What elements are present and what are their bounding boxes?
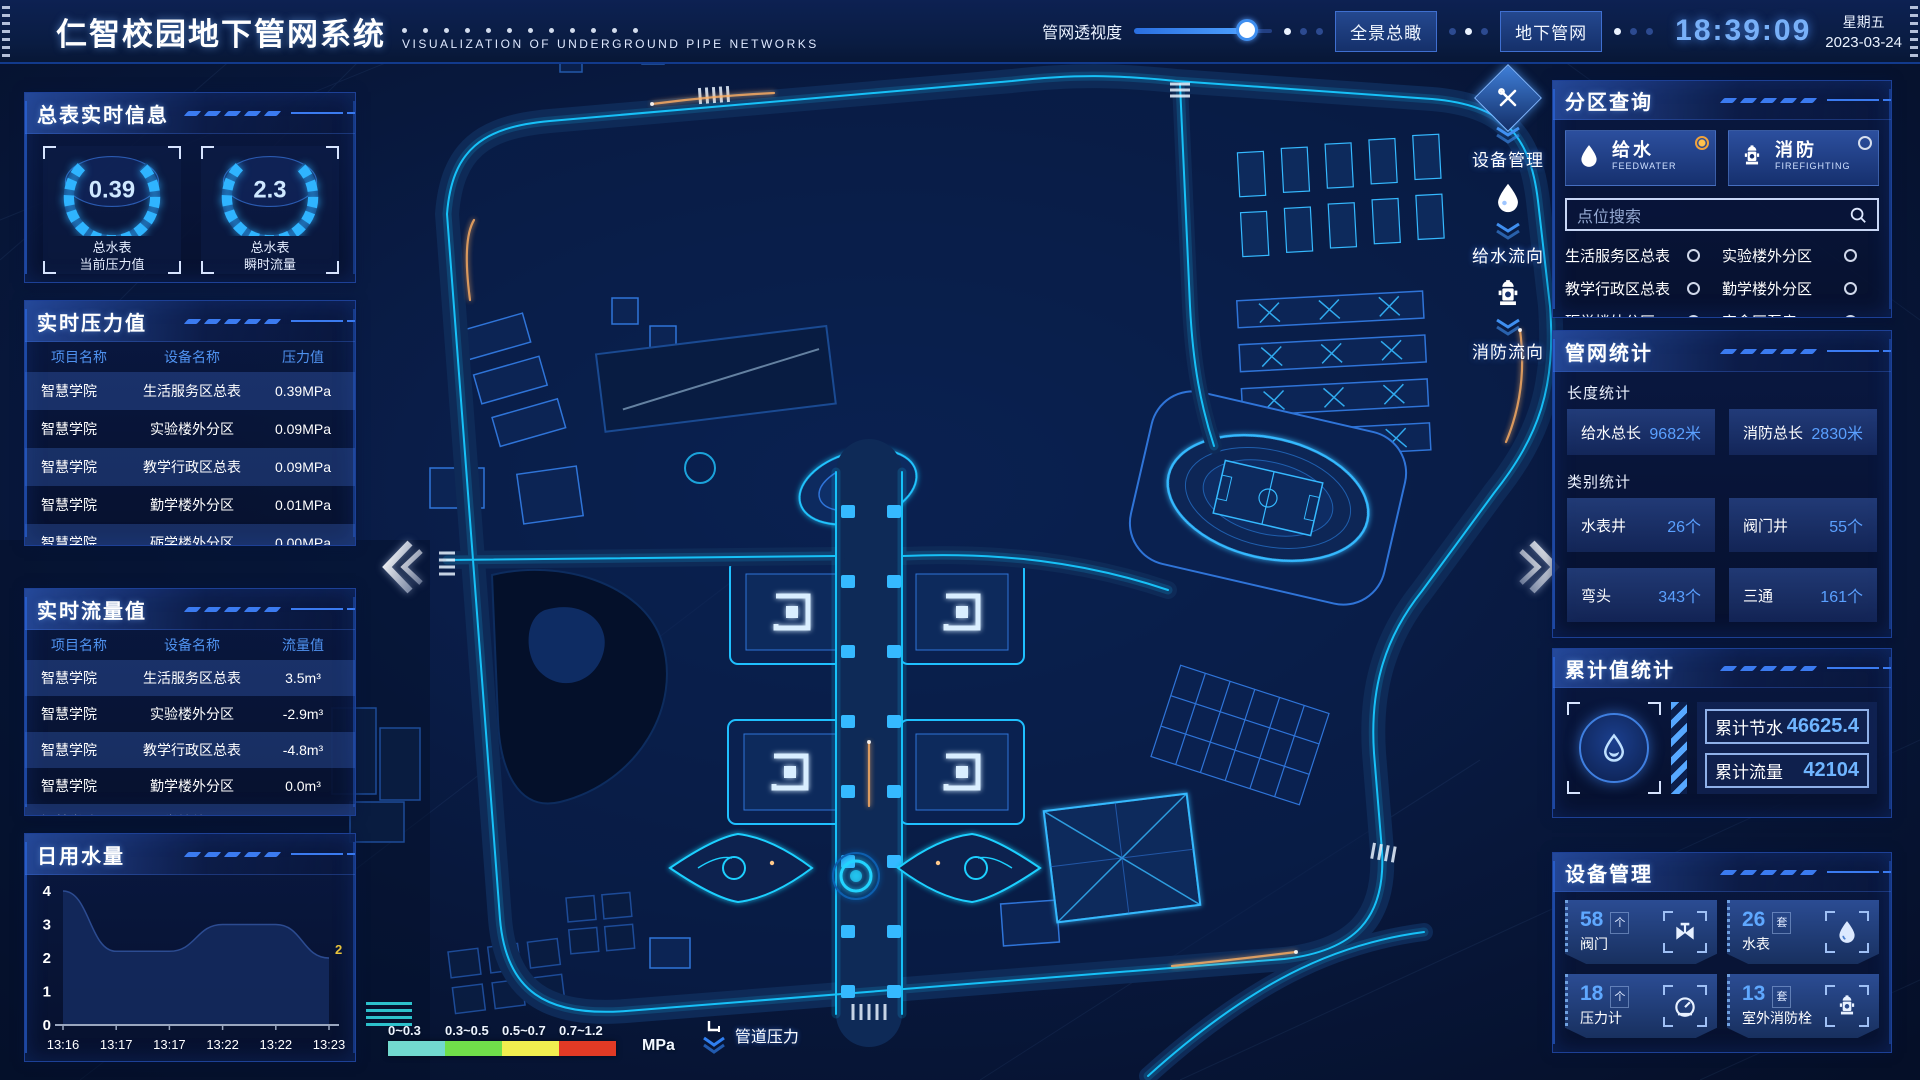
project-name: 智慧学院	[33, 457, 125, 477]
device-count: 58	[1580, 910, 1603, 930]
pipe-pressure-icon	[701, 1020, 727, 1056]
device-unit: 套	[1772, 986, 1791, 1008]
slashes-decoration	[1715, 349, 1815, 354]
slashes-decoration	[1715, 666, 1815, 671]
pipe-pressure-label: 管道压力	[735, 1023, 799, 1047]
table-row: 智慧学院 砺学楼外分区 0.00MPa	[25, 524, 355, 546]
slider-handle[interactable]	[1236, 19, 1258, 41]
zone-option[interactable]: 实验楼外分区	[1722, 239, 1879, 272]
radio-icon[interactable]	[1858, 136, 1872, 150]
category-stats-title: 类别统计	[1567, 471, 1877, 492]
slashes-decoration	[179, 319, 279, 324]
panel-title: 总表实时信息	[37, 99, 169, 128]
svg-text:13:22: 13:22	[260, 1037, 293, 1052]
project-name: 智慧学院	[33, 740, 125, 760]
column-header: 项目名称	[33, 635, 125, 655]
panel-title: 实时压力值	[37, 307, 147, 336]
stat-box: 给水总长 9682米	[1567, 409, 1715, 455]
stat-value: 55个	[1829, 513, 1863, 537]
cumulative-icon-card	[1567, 702, 1661, 794]
column-header: 设备名称	[125, 635, 259, 655]
slashes-decoration	[179, 852, 279, 857]
search-input[interactable]: 点位搜索	[1565, 198, 1879, 231]
radio-icon[interactable]	[1687, 282, 1700, 295]
device-unit: 套	[1772, 912, 1791, 934]
water-meter-icon	[1825, 911, 1869, 953]
gauge-instant-flow: 2.3 总水表 瞬时流量	[201, 146, 339, 274]
gauge-main-pressure: 0.39 总水表 当前压力值	[43, 146, 181, 274]
table-row: 智慧学院 勤学楼外分区 0.01MPa	[25, 486, 355, 524]
overview-button[interactable]: 全景总瞰	[1335, 11, 1437, 52]
gauge-dial: 0.39	[43, 152, 181, 236]
legend-segment	[388, 1041, 445, 1056]
page-subtitle: VISUALIZATION OF UNDERGROUND PIPE NETWOR…	[402, 37, 819, 51]
brand: 仁智校园地下管网系统 VISUALIZATION OF UNDERGROUND …	[56, 9, 819, 54]
panel-realtime-summary: 总表实时信息 0.39 总水表 当前压力值 2.3 总水表 瞬时流量	[24, 92, 356, 283]
radio-icon[interactable]	[1844, 315, 1857, 318]
cumulative-label: 累计节水	[1715, 714, 1783, 739]
gauge-label: 瞬时流量	[201, 256, 339, 273]
panel-title: 管网统计	[1565, 337, 1653, 366]
column-header: 流量值	[259, 635, 347, 655]
clock-weekday: 星期五	[1843, 12, 1885, 32]
project-name: 智慧学院	[33, 533, 125, 546]
svg-text:2.3: 2.3	[253, 176, 286, 203]
zone-options: 生活服务区总表 实验楼外分区 教学行政区总表 勤学楼外分区 砺学楼外分区 宿舍区…	[1565, 239, 1879, 318]
pressure-value: 0.09MPa	[259, 421, 347, 437]
clock-date: 2023-03-24	[1825, 34, 1902, 51]
page-title: 仁智校园地下管网系统	[56, 9, 386, 54]
device-label: 水表	[1742, 934, 1791, 954]
slashes-decoration	[179, 111, 279, 116]
zone-option[interactable]: 宿舍区泵房	[1722, 305, 1879, 318]
stat-label: 三通	[1743, 585, 1773, 606]
tool-label: 给水流向	[1472, 242, 1544, 267]
device-count: 18	[1580, 984, 1603, 1004]
pressure-value: 0.00MPa	[259, 535, 347, 546]
zone-option-label: 砺学楼外分区	[1565, 311, 1655, 318]
search-icon	[1849, 206, 1867, 224]
hydrant-icon	[1739, 143, 1765, 174]
stat-label: 阀门井	[1743, 515, 1788, 536]
table-row: 智慧学院 实验楼外分区 -2.9m³	[25, 696, 355, 732]
zone-option[interactable]: 生活服务区总表	[1565, 239, 1722, 272]
zone-option[interactable]: 教学行政区总表	[1565, 272, 1722, 305]
pressure-value: 0.39MPa	[259, 383, 347, 399]
project-name: 智慧学院	[33, 704, 125, 724]
cumulative-saved-row: 累计节水 46625.4	[1705, 709, 1869, 744]
chevron-down-icon	[1493, 222, 1523, 240]
zone-option-label: 实验楼外分区	[1722, 245, 1812, 266]
project-name: 智慧学院	[33, 668, 125, 688]
stripe-decoration	[1671, 702, 1687, 794]
stat-box: 水表井 26个	[1567, 498, 1715, 552]
tool-label: 消防流向	[1472, 338, 1544, 363]
device-card-pressure-gauges[interactable]: 18个 压力计	[1565, 974, 1717, 1038]
device-name: 生活服务区总表	[125, 381, 259, 401]
panel-title: 实时流量值	[37, 595, 147, 624]
fountain	[833, 853, 879, 899]
zone-option-label: 生活服务区总表	[1565, 245, 1670, 266]
pressure-gauge-icon	[1663, 985, 1707, 1027]
legend-range-label: 0~0.3	[388, 1023, 445, 1038]
tab-label: 给水	[1612, 142, 1677, 158]
device-unit: 个	[1610, 986, 1629, 1008]
device-name: 勤学楼外分区	[125, 776, 259, 796]
map-tool-stack: 设备管理 给水流向 消防流向	[1462, 66, 1554, 367]
pressure-value: 0.09MPa	[259, 459, 347, 475]
table-row: 智慧学院 砺学楼外分区 2.3m³	[25, 804, 355, 816]
svg-text:13:17: 13:17	[100, 1037, 133, 1052]
stat-value: 161个	[1820, 583, 1863, 607]
title-dots-decoration	[402, 28, 819, 33]
stat-value: 26个	[1667, 513, 1701, 537]
zone-option[interactable]: 勤学楼外分区	[1722, 272, 1879, 305]
svg-text:13:16: 13:16	[47, 1037, 80, 1052]
legend-bar	[388, 1041, 616, 1056]
legend-range-label: 0.5~0.7	[502, 1023, 559, 1038]
legend-segment	[559, 1041, 616, 1056]
dots-decoration	[1449, 28, 1488, 35]
project-name: 智慧学院	[33, 419, 125, 439]
legend-segment	[502, 1041, 559, 1056]
svg-text:0.39: 0.39	[89, 176, 135, 203]
stat-value: 9682米	[1649, 420, 1701, 444]
panel-title: 分区查询	[1565, 86, 1653, 115]
svg-text:13:22: 13:22	[206, 1037, 239, 1052]
device-count: 13	[1742, 984, 1765, 1004]
radio-icon[interactable]	[1687, 249, 1700, 262]
water-drop-icon	[1491, 181, 1525, 220]
search-placeholder: 点位搜索	[1577, 203, 1641, 227]
legend-range-labels: 0~0.30.3~0.50.5~0.70.7~1.2	[388, 1023, 616, 1038]
cumulative-label: 累计流量	[1715, 758, 1783, 783]
tool-feedwater-flow[interactable]: 给水流向	[1472, 175, 1544, 267]
tools-icon	[1474, 64, 1542, 132]
tab-sublabel: FIREFIGHTING	[1775, 158, 1851, 174]
flow-value: 0.0m³	[259, 778, 347, 794]
legend-unit: MPa	[642, 1037, 675, 1055]
panel-daily-water: 日用水量 0123413:1613:1713:1713:2213:2213:23…	[24, 833, 356, 1062]
hydrant-icon	[1491, 277, 1525, 316]
clock: 18:39:09 星期五 2023-03-24	[1675, 12, 1902, 51]
panel-realtime-flow: 实时流量值 项目名称设备名称流量值 智慧学院 生活服务区总表 3.5m³ 智慧学…	[24, 588, 356, 816]
zone-option-label: 宿舍区泵房	[1722, 311, 1797, 318]
device-name: 实验楼外分区	[125, 704, 259, 724]
tab-sublabel: FEEDWATER	[1612, 158, 1677, 174]
device-count: 26	[1742, 910, 1765, 930]
slashes-decoration	[179, 607, 279, 612]
pressure-value: 0.01MPa	[259, 497, 347, 513]
device-unit: 个	[1610, 912, 1629, 934]
dots-decoration	[1614, 28, 1653, 35]
clock-time: 18:39:09	[1675, 14, 1811, 48]
water-drop-icon	[1579, 713, 1649, 783]
cumulative-flow-row: 累计流量 42104	[1705, 753, 1869, 788]
dots-decoration	[1284, 28, 1323, 35]
stat-box: 三通 161个	[1729, 568, 1877, 622]
zone-option-label: 教学行政区总表	[1565, 278, 1670, 299]
stat-value: 2830米	[1811, 420, 1863, 444]
flow-table: 智慧学院 生活服务区总表 3.5m³ 智慧学院 实验楼外分区 -2.9m³ 智慧…	[25, 660, 355, 816]
flow-value: 3.5m³	[259, 670, 347, 686]
radio-icon[interactable]	[1695, 136, 1709, 150]
table-row: 智慧学院 生活服务区总表 3.5m³	[25, 660, 355, 696]
radio-icon[interactable]	[1687, 315, 1700, 318]
stat-label: 消防总长	[1743, 422, 1803, 443]
column-header: 项目名称	[33, 347, 125, 367]
flow-table-header: 项目名称设备名称流量值	[25, 630, 355, 660]
header-right-decoration	[1910, 6, 1918, 58]
gauge-label: 总水表	[43, 239, 181, 256]
svg-text:13:17: 13:17	[153, 1037, 186, 1052]
transparency-slider-label: 管网透视度	[1042, 19, 1122, 43]
panel-title: 设备管理	[1565, 858, 1653, 887]
stat-box: 消防总长 2830米	[1729, 409, 1877, 455]
zone-option-label: 勤学楼外分区	[1722, 278, 1812, 299]
stat-value: 343个	[1658, 583, 1701, 607]
tab-firefighting[interactable]: 消防 FIREFIGHTING	[1728, 130, 1879, 186]
valve-icon	[1663, 911, 1707, 953]
stat-label: 给水总长	[1581, 422, 1641, 443]
chevron-down-icon	[1493, 318, 1523, 336]
device-name: 教学行政区总表	[125, 740, 259, 760]
stat-box: 弯头 343个	[1567, 568, 1715, 622]
device-card-hydrants[interactable]: 13套 室外消防栓	[1727, 974, 1879, 1038]
header-bar: 仁智校园地下管网系统 VISUALIZATION OF UNDERGROUND …	[0, 0, 1920, 64]
project-name: 智慧学院	[33, 776, 125, 796]
table-row: 智慧学院 教学行政区总表 0.09MPa	[25, 448, 355, 486]
pressure-table-header: 项目名称设备名称压力值	[25, 342, 355, 372]
device-name: 生活服务区总表	[125, 668, 259, 688]
legend-range-label: 0.3~0.5	[445, 1023, 502, 1038]
stat-box: 阀门井 55个	[1729, 498, 1877, 552]
column-header: 压力值	[259, 347, 347, 367]
hydrant-icon	[1825, 985, 1869, 1027]
device-label: 阀门	[1580, 934, 1629, 954]
svg-text:13:23: 13:23	[313, 1037, 346, 1052]
flow-value: -4.8m³	[259, 742, 347, 758]
stat-label: 弯头	[1581, 585, 1611, 606]
tab-feedwater[interactable]: 给水 FEEDWATER	[1565, 130, 1716, 186]
cumulative-value: 46625.4	[1787, 715, 1859, 738]
panel-network-stats: 管网统计 长度统计 给水总长 9682米 消防总长 2830米 类别统计 水表井…	[1552, 330, 1892, 638]
gauge-dial: 2.3	[201, 152, 339, 236]
device-name: 教学行政区总表	[125, 457, 259, 477]
slashes-decoration	[1715, 98, 1815, 103]
panel-realtime-pressure: 实时压力值 项目名称设备名称压力值 智慧学院 生活服务区总表 0.39MPa 智…	[24, 300, 356, 546]
daily-water-chart: 0123413:1613:1713:1713:2213:2213:232	[33, 877, 347, 1059]
pressure-legend: 0~0.30.3~0.50.5~0.70.7~1.2 MPa 管道压力	[388, 1020, 799, 1056]
column-header: 设备名称	[125, 347, 259, 367]
header-left-decoration	[2, 6, 10, 58]
legend-segment	[445, 1041, 502, 1056]
radio-icon[interactable]	[1844, 249, 1857, 262]
sports-hall	[1044, 794, 1201, 923]
svg-text:2: 2	[43, 950, 51, 967]
svg-text:1: 1	[43, 984, 51, 1001]
table-row: 智慧学院 生活服务区总表 0.39MPa	[25, 372, 355, 410]
radio-icon[interactable]	[1844, 282, 1857, 295]
gauge-label: 总水表	[201, 239, 339, 256]
device-card-valves[interactable]: 58个 阀门	[1565, 900, 1717, 964]
stat-label: 水表井	[1581, 515, 1626, 536]
pressure-table: 智慧学院 生活服务区总表 0.39MPa 智慧学院 实验楼外分区 0.09MPa…	[25, 372, 355, 546]
svg-text:4: 4	[43, 883, 52, 900]
flow-value: -2.9m³	[259, 706, 347, 722]
map-prev-arrow[interactable]	[378, 538, 424, 596]
tool-firefighting-flow[interactable]: 消防流向	[1472, 271, 1544, 363]
underground-pipes-button[interactable]: 地下管网	[1500, 11, 1602, 52]
device-label: 压力计	[1580, 1008, 1629, 1028]
panel-title: 累计值统计	[1565, 654, 1675, 683]
svg-text:0: 0	[43, 1017, 51, 1034]
device-label: 室外消防栓	[1742, 1008, 1812, 1028]
project-name: 智慧学院	[33, 812, 125, 816]
device-card-water-meters[interactable]: 26套 水表	[1727, 900, 1879, 964]
panel-title: 日用水量	[37, 840, 125, 869]
slashes-decoration	[1715, 870, 1815, 875]
water-drop-icon	[1576, 143, 1602, 174]
zone-option[interactable]: 砺学楼外分区	[1565, 305, 1722, 318]
svg-text:3: 3	[43, 917, 51, 934]
length-stats: 给水总长 9682米 消防总长 2830米	[1553, 409, 1891, 455]
tool-device-management[interactable]: 设备管理	[1472, 66, 1544, 171]
panel-cumulative: 累计值统计 累计节水 46625.4 累计流量 42104	[1552, 648, 1892, 818]
panel-zone-query: 分区查询 给水 FEEDWATER 消防 FIREFIGHTING 点位搜索 生…	[1552, 80, 1892, 318]
device-name: 砺学楼外分区	[125, 533, 259, 546]
gauge-label: 当前压力值	[43, 256, 181, 273]
svg-text:2: 2	[335, 942, 342, 957]
transparency-slider-fill	[1134, 28, 1247, 34]
project-name: 智慧学院	[33, 381, 125, 401]
legend-range-label: 0.7~1.2	[559, 1023, 616, 1038]
transparency-slider[interactable]	[1134, 20, 1272, 42]
category-stats: 水表井 26个 阀门井 55个 弯头 343个 三通 161个	[1553, 498, 1891, 622]
device-name: 砺学楼外分区	[125, 812, 259, 816]
length-stats-title: 长度统计	[1567, 382, 1877, 403]
device-name: 实验楼外分区	[125, 419, 259, 439]
tab-label: 消防	[1775, 142, 1851, 158]
flow-value: 2.3m³	[259, 814, 347, 816]
cumulative-value: 42104	[1803, 759, 1859, 782]
panel-device-management: 设备管理 58个 阀门 26套 水表 18个 压力计 13套 室外消防栓	[1552, 852, 1892, 1053]
device-name: 勤学楼外分区	[125, 495, 259, 515]
project-name: 智慧学院	[33, 495, 125, 515]
tool-label: 设备管理	[1472, 146, 1544, 171]
table-row: 智慧学院 实验楼外分区 0.09MPa	[25, 410, 355, 448]
table-row: 智慧学院 勤学楼外分区 0.0m³	[25, 768, 355, 804]
table-row: 智慧学院 教学行政区总表 -4.8m³	[25, 732, 355, 768]
